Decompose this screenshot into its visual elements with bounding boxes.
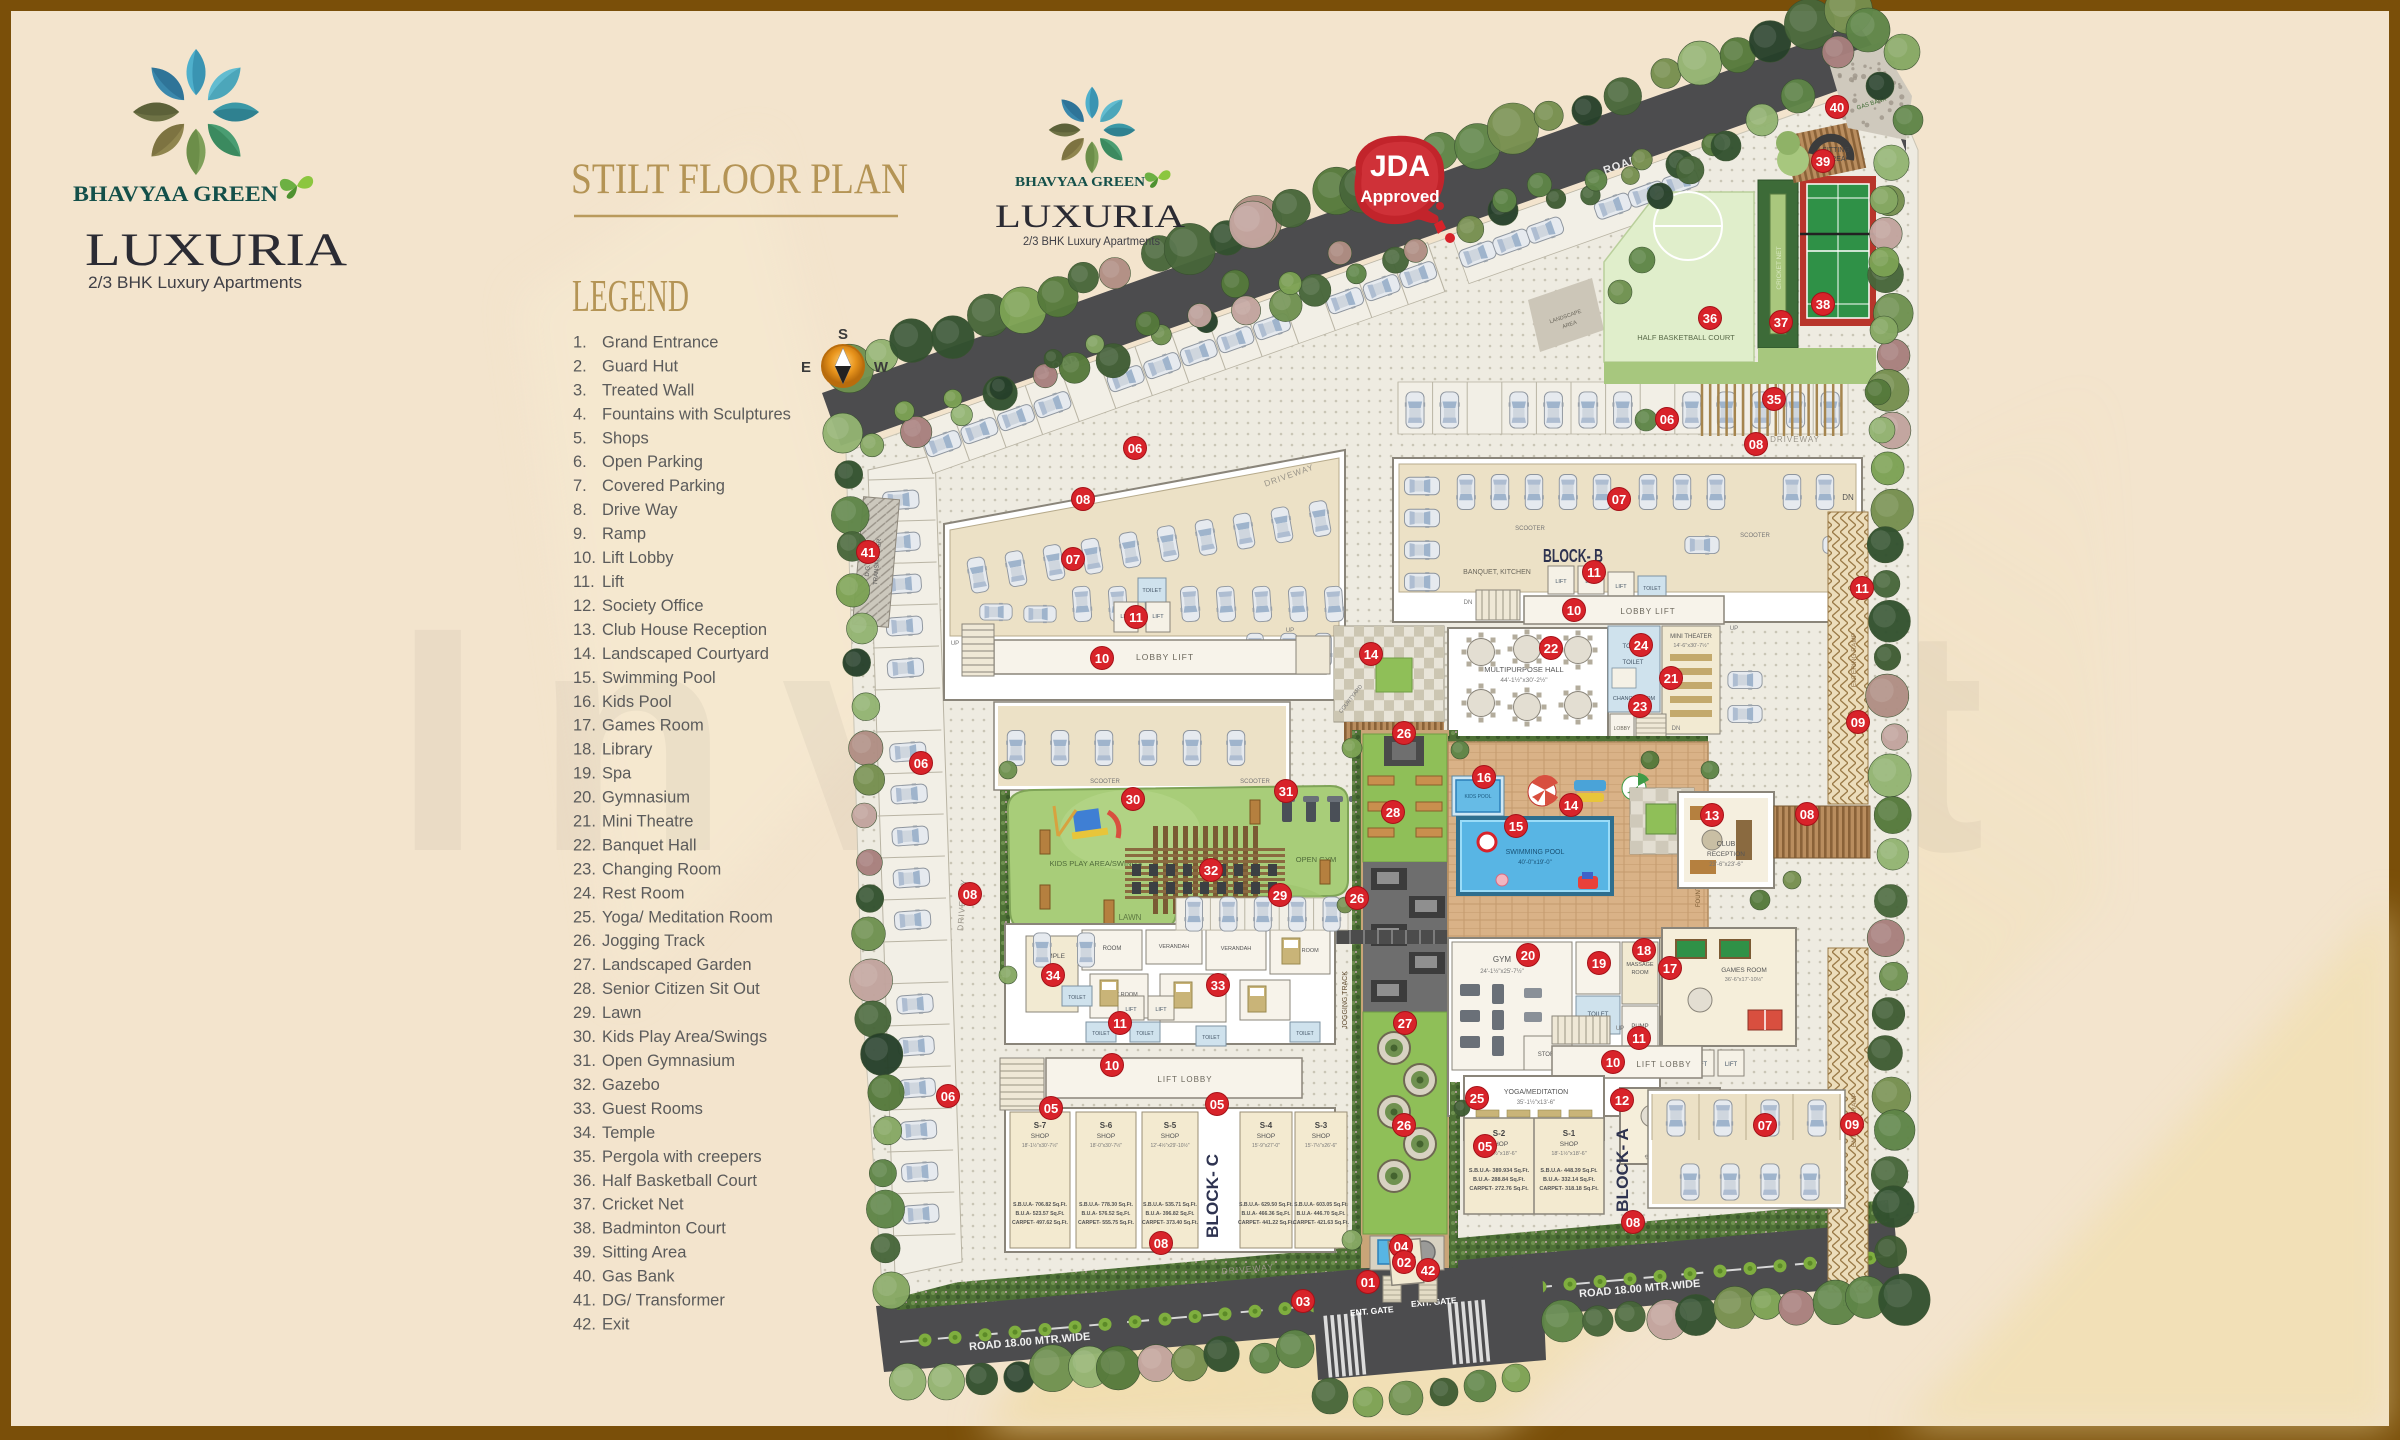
svg-text:VERANDAH: VERANDAH bbox=[1159, 944, 1190, 950]
svg-text:34.: 34. bbox=[573, 1124, 596, 1142]
svg-text:08: 08 bbox=[1800, 807, 1814, 822]
svg-text:26: 26 bbox=[1397, 1118, 1411, 1133]
svg-text:ENTERING RAMP: ENTERING RAMP bbox=[1851, 633, 1858, 687]
svg-text:06: 06 bbox=[1128, 441, 1142, 456]
svg-text:40'-0"x19'-0": 40'-0"x19'-0" bbox=[1518, 860, 1552, 866]
svg-text:19: 19 bbox=[1592, 956, 1606, 971]
svg-text:19.: 19. bbox=[573, 765, 596, 783]
svg-text:S-7: S-7 bbox=[1034, 1121, 1047, 1130]
svg-text:UP: UP bbox=[1286, 628, 1294, 634]
svg-text:LUXURIA: LUXURIA bbox=[995, 199, 1185, 235]
svg-text:18'-0"x30'-7½": 18'-0"x30'-7½" bbox=[1090, 1142, 1122, 1149]
svg-text:15: 15 bbox=[1509, 819, 1523, 834]
svg-text:CLUB: CLUB bbox=[1717, 841, 1736, 848]
svg-text:18'-1½"x30'-7½": 18'-1½"x30'-7½" bbox=[1022, 1142, 1059, 1149]
svg-text:CARPET- 441.22 Sq.Ft.: CARPET- 441.22 Sq.Ft. bbox=[1238, 1220, 1294, 1226]
svg-text:08: 08 bbox=[1154, 1236, 1168, 1251]
svg-text:Gazebo: Gazebo bbox=[602, 1076, 660, 1094]
svg-text:Landscaped Courtyard: Landscaped Courtyard bbox=[602, 645, 769, 663]
svg-text:LOBBY LIFT: LOBBY LIFT bbox=[1136, 652, 1194, 662]
svg-text:08: 08 bbox=[1626, 1215, 1640, 1230]
svg-text:03: 03 bbox=[1296, 1294, 1310, 1309]
svg-text:Landscaped Garden: Landscaped Garden bbox=[602, 956, 752, 974]
svg-text:Kids Pool: Kids Pool bbox=[602, 693, 672, 711]
svg-text:10: 10 bbox=[1567, 603, 1581, 618]
svg-text:40.: 40. bbox=[573, 1268, 596, 1286]
svg-text:Shops: Shops bbox=[602, 429, 649, 447]
svg-text:Temple: Temple bbox=[602, 1124, 655, 1142]
svg-text:DN: DN bbox=[1672, 726, 1681, 732]
svg-text:17: 17 bbox=[1663, 961, 1677, 976]
svg-text:SCOOTER: SCOOTER bbox=[1515, 526, 1545, 532]
svg-text:25.: 25. bbox=[573, 908, 596, 926]
svg-text:SWIMMING POOL: SWIMMING POOL bbox=[1506, 849, 1565, 856]
svg-text:RECEPTION: RECEPTION bbox=[1707, 851, 1745, 858]
svg-text:10: 10 bbox=[1095, 651, 1109, 666]
svg-text:S-6: S-6 bbox=[1100, 1121, 1113, 1130]
svg-text:Spa: Spa bbox=[602, 765, 632, 783]
svg-text:STILT FLOOR PLAN: STILT FLOOR PLAN bbox=[571, 156, 908, 203]
svg-text:Covered Parking: Covered Parking bbox=[602, 477, 725, 495]
svg-text:28.: 28. bbox=[573, 980, 596, 998]
svg-text:LIFT LOBBY: LIFT LOBBY bbox=[1157, 1075, 1212, 1084]
svg-text:02: 02 bbox=[1397, 1255, 1411, 1270]
svg-text:JDA: JDA bbox=[1370, 150, 1430, 183]
svg-text:LUXURIA: LUXURIA bbox=[85, 224, 347, 276]
svg-text:32.: 32. bbox=[573, 1076, 596, 1094]
svg-text:LOBBY: LOBBY bbox=[1614, 726, 1631, 732]
svg-text:Exit: Exit bbox=[602, 1315, 630, 1333]
svg-text:06: 06 bbox=[941, 1089, 955, 1104]
svg-text:01: 01 bbox=[1361, 1275, 1375, 1290]
svg-text:11.: 11. bbox=[573, 573, 595, 591]
svg-text:33: 33 bbox=[1211, 978, 1225, 993]
svg-text:36.: 36. bbox=[573, 1172, 596, 1190]
svg-text:LOBBY LIFT: LOBBY LIFT bbox=[1620, 607, 1675, 616]
svg-text:22.: 22. bbox=[573, 837, 596, 855]
svg-text:38.: 38. bbox=[573, 1220, 596, 1238]
svg-text:S.B.U.A- 389.934 Sq.Ft.: S.B.U.A- 389.934 Sq.Ft. bbox=[1469, 1168, 1530, 1174]
svg-text:W: W bbox=[874, 359, 889, 376]
svg-text:6.: 6. bbox=[573, 453, 587, 471]
svg-text:UP: UP bbox=[1730, 626, 1738, 632]
svg-text:TOILET: TOILET bbox=[1092, 1031, 1109, 1037]
svg-text:14.: 14. bbox=[573, 645, 596, 663]
svg-text:BANQUET, KITCHEN: BANQUET, KITCHEN bbox=[1463, 569, 1531, 576]
svg-text:DG/ Transformer: DG/ Transformer bbox=[602, 1292, 725, 1310]
svg-text:B.U.A- 332.14 Sq.Ft.: B.U.A- 332.14 Sq.Ft. bbox=[1543, 1177, 1595, 1183]
svg-text:7.: 7. bbox=[573, 477, 587, 495]
svg-text:S: S bbox=[838, 326, 848, 343]
svg-text:27.: 27. bbox=[573, 956, 596, 974]
svg-text:38: 38 bbox=[1816, 297, 1830, 312]
svg-text:Changing Room: Changing Room bbox=[602, 860, 721, 878]
svg-text:06: 06 bbox=[914, 756, 928, 771]
svg-text:Senior Citizen Sit Out: Senior Citizen Sit Out bbox=[602, 980, 760, 998]
svg-text:2/3 BHK Luxury Apartments: 2/3 BHK Luxury Apartments bbox=[1023, 236, 1160, 248]
svg-text:ROOM: ROOM bbox=[1631, 970, 1649, 976]
svg-text:S.B.U.A- 778.30 Sq.Ft.: S.B.U.A- 778.30 Sq.Ft. bbox=[1079, 1202, 1133, 1208]
svg-text:18'-1½"x18'-6": 18'-1½"x18'-6" bbox=[1551, 1150, 1586, 1157]
svg-text:07: 07 bbox=[1758, 1118, 1772, 1133]
svg-text:B.U.A- 466.36 Sq.Ft.: B.U.A- 466.36 Sq.Ft. bbox=[1241, 1211, 1291, 1217]
svg-text:BLOCK- C: BLOCK- C bbox=[1203, 1154, 1222, 1238]
svg-text:32: 32 bbox=[1204, 863, 1218, 878]
svg-text:42: 42 bbox=[1421, 1263, 1435, 1278]
svg-text:B.U.A- 288.84 Sq.Ft.: B.U.A- 288.84 Sq.Ft. bbox=[1473, 1177, 1525, 1183]
svg-text:CARPET- 555.75 Sq.Ft.: CARPET- 555.75 Sq.Ft. bbox=[1078, 1220, 1134, 1226]
svg-text:05: 05 bbox=[1210, 1097, 1224, 1112]
svg-text:12.: 12. bbox=[573, 597, 596, 615]
svg-text:26: 26 bbox=[1350, 891, 1364, 906]
svg-text:2.: 2. bbox=[573, 357, 587, 375]
svg-text:25: 25 bbox=[1470, 1091, 1484, 1106]
svg-text:27: 27 bbox=[1398, 1016, 1412, 1031]
svg-text:Ramp: Ramp bbox=[602, 525, 646, 543]
svg-text:09: 09 bbox=[1851, 715, 1865, 730]
svg-text:07: 07 bbox=[1612, 492, 1626, 507]
svg-text:26: 26 bbox=[1397, 726, 1411, 741]
svg-text:Sitting Area: Sitting Area bbox=[602, 1244, 687, 1262]
svg-text:SHOP: SHOP bbox=[1097, 1133, 1115, 1140]
svg-text:Games Room: Games Room bbox=[602, 717, 704, 735]
svg-text:8.: 8. bbox=[573, 501, 587, 519]
svg-text:S-2: S-2 bbox=[1493, 1129, 1506, 1138]
svg-text:24: 24 bbox=[1634, 638, 1649, 653]
svg-text:VERANDAH: VERANDAH bbox=[1221, 946, 1252, 952]
svg-text:YOGA/MEDITATION: YOGA/MEDITATION bbox=[1504, 1089, 1568, 1096]
svg-text:5.: 5. bbox=[573, 429, 587, 447]
svg-text:13.: 13. bbox=[573, 621, 596, 639]
svg-text:B.U.A- 396.82 Sq.Ft.: B.U.A- 396.82 Sq.Ft. bbox=[1145, 1211, 1195, 1217]
svg-text:20.: 20. bbox=[573, 789, 596, 807]
svg-text:Approved: Approved bbox=[1360, 187, 1439, 206]
svg-text:05: 05 bbox=[1044, 1101, 1058, 1116]
svg-text:LIFT: LIFT bbox=[1615, 584, 1627, 590]
svg-text:21: 21 bbox=[1664, 671, 1678, 686]
svg-text:08: 08 bbox=[963, 887, 977, 902]
svg-text:SHOP: SHOP bbox=[1031, 1133, 1049, 1140]
svg-text:Pergola with creepers: Pergola with creepers bbox=[602, 1148, 762, 1166]
svg-text:CARPET- 272.76 Sq.Ft.: CARPET- 272.76 Sq.Ft. bbox=[1469, 1186, 1529, 1192]
svg-text:S-3: S-3 bbox=[1315, 1121, 1328, 1130]
svg-text:S-1: S-1 bbox=[1563, 1129, 1576, 1138]
svg-text:KIDS POOL: KIDS POOL bbox=[1465, 794, 1492, 800]
svg-text:17.: 17. bbox=[573, 717, 596, 735]
svg-text:LAWN: LAWN bbox=[1119, 913, 1142, 922]
svg-text:26.: 26. bbox=[573, 932, 596, 950]
svg-text:16.: 16. bbox=[573, 693, 596, 711]
svg-text:Guest Rooms: Guest Rooms bbox=[602, 1100, 703, 1118]
svg-text:Yoga/ Meditation Room: Yoga/ Meditation Room bbox=[602, 908, 773, 926]
svg-text:14: 14 bbox=[1564, 798, 1579, 813]
svg-text:37: 37 bbox=[1774, 315, 1788, 330]
svg-text:11: 11 bbox=[1632, 1031, 1646, 1046]
svg-text:LIFT: LIFT bbox=[1125, 1007, 1137, 1013]
svg-text:DRIVEWAY: DRIVEWAY bbox=[1770, 435, 1820, 444]
svg-text:2/3 BHK Luxury Apartments: 2/3 BHK Luxury Apartments bbox=[88, 274, 302, 292]
svg-text:Lift: Lift bbox=[602, 573, 624, 591]
svg-text:24.: 24. bbox=[573, 884, 596, 902]
svg-text:Swimming Pool: Swimming Pool bbox=[602, 669, 716, 687]
svg-text:Grand Entrance: Grand Entrance bbox=[602, 334, 718, 352]
svg-text:30.: 30. bbox=[573, 1028, 596, 1046]
svg-text:Badminton Court: Badminton Court bbox=[602, 1220, 726, 1238]
svg-text:23'-6"x23'-6": 23'-6"x23'-6" bbox=[1709, 862, 1743, 868]
svg-text:20: 20 bbox=[1521, 948, 1535, 963]
svg-text:SHOP: SHOP bbox=[1312, 1133, 1330, 1140]
svg-text:S.B.U.A- 706.82 Sq.Ft.: S.B.U.A- 706.82 Sq.Ft. bbox=[1013, 1202, 1067, 1208]
svg-text:SHOP: SHOP bbox=[1161, 1133, 1179, 1140]
svg-text:Banquet Hall: Banquet Hall bbox=[602, 837, 696, 855]
svg-text:31.: 31. bbox=[573, 1052, 596, 1070]
svg-text:SCOOTER: SCOOTER bbox=[1740, 533, 1770, 539]
svg-text:Cricket Net: Cricket Net bbox=[602, 1196, 684, 1214]
svg-text:TOILET: TOILET bbox=[1296, 1031, 1313, 1037]
svg-text:37.: 37. bbox=[573, 1196, 596, 1214]
svg-text:30: 30 bbox=[1126, 792, 1140, 807]
svg-text:13: 13 bbox=[1705, 808, 1719, 823]
svg-text:TOILET: TOILET bbox=[1643, 586, 1660, 592]
svg-text:41.: 41. bbox=[573, 1292, 596, 1310]
svg-text:Guard Hut: Guard Hut bbox=[602, 357, 679, 375]
svg-text:10: 10 bbox=[1606, 1055, 1620, 1070]
svg-text:1.: 1. bbox=[573, 334, 587, 352]
svg-text:10.: 10. bbox=[573, 549, 596, 567]
svg-text:44'-1½"x30'-2½": 44'-1½"x30'-2½" bbox=[1500, 676, 1548, 684]
svg-text:12: 12 bbox=[1615, 1093, 1629, 1108]
svg-text:SHOP: SHOP bbox=[1560, 1141, 1578, 1148]
svg-text:Society Office: Society Office bbox=[602, 597, 704, 615]
svg-text:33.: 33. bbox=[573, 1100, 596, 1118]
svg-text:MULTIPURPOSE HALL: MULTIPURPOSE HALL bbox=[1484, 665, 1563, 674]
svg-text:34: 34 bbox=[1046, 968, 1061, 983]
svg-text:LIFT: LIFT bbox=[1152, 614, 1164, 620]
svg-text:41: 41 bbox=[861, 545, 875, 560]
svg-text:42.: 42. bbox=[573, 1315, 596, 1333]
svg-text:39: 39 bbox=[1816, 154, 1830, 169]
svg-text:TOILET: TOILET bbox=[1623, 660, 1644, 666]
svg-text:TOILET: TOILET bbox=[1068, 995, 1085, 1001]
svg-text:40: 40 bbox=[1830, 100, 1844, 115]
svg-text:E: E bbox=[801, 359, 811, 376]
svg-text:CARPET- 318.18 Sq.Ft.: CARPET- 318.18 Sq.Ft. bbox=[1539, 1186, 1599, 1192]
svg-text:31: 31 bbox=[1279, 784, 1293, 799]
svg-text:Treated Wall: Treated Wall bbox=[602, 381, 694, 399]
svg-text:4.: 4. bbox=[573, 405, 587, 423]
svg-text:Mini Theatre: Mini Theatre bbox=[602, 813, 693, 831]
svg-text:07: 07 bbox=[1066, 552, 1080, 567]
svg-text:CRICKET NET: CRICKET NET bbox=[1776, 246, 1783, 289]
svg-text:LIFT: LIFT bbox=[1155, 1007, 1167, 1013]
svg-text:14: 14 bbox=[1364, 647, 1379, 662]
svg-text:Gymnasium: Gymnasium bbox=[602, 789, 690, 807]
svg-text:B.U.A- 576.52 Sq.Ft.: B.U.A- 576.52 Sq.Ft. bbox=[1081, 1211, 1131, 1217]
svg-text:DN: DN bbox=[1842, 493, 1854, 502]
svg-text:09: 09 bbox=[1845, 1117, 1859, 1132]
svg-text:CARPET- 373.40 Sq.Ft.: CARPET- 373.40 Sq.Ft. bbox=[1142, 1220, 1198, 1226]
svg-text:18.: 18. bbox=[573, 741, 596, 759]
svg-text:S-4: S-4 bbox=[1260, 1121, 1273, 1130]
svg-text:CARPET- 421.63 Sq.Ft.: CARPET- 421.63 Sq.Ft. bbox=[1293, 1220, 1349, 1226]
svg-text:S.B.U.A- 535.71 Sq.Ft.: S.B.U.A- 535.71 Sq.Ft. bbox=[1143, 1202, 1197, 1208]
svg-text:14'-6"x30'-7½": 14'-6"x30'-7½" bbox=[1673, 642, 1708, 649]
svg-text:11: 11 bbox=[1113, 1016, 1127, 1031]
svg-text:Library: Library bbox=[602, 741, 653, 759]
svg-text:10: 10 bbox=[1105, 1058, 1119, 1073]
svg-text:23.: 23. bbox=[573, 860, 596, 878]
svg-text:06: 06 bbox=[1660, 412, 1674, 427]
svg-text:Lift Lobby: Lift Lobby bbox=[602, 549, 674, 567]
svg-text:TOILET: TOILET bbox=[1202, 1035, 1219, 1041]
svg-text:Open Parking: Open Parking bbox=[602, 453, 703, 471]
svg-text:SCOOTER: SCOOTER bbox=[1090, 779, 1120, 785]
svg-text:35.: 35. bbox=[573, 1148, 596, 1166]
svg-text:11: 11 bbox=[1587, 565, 1601, 580]
svg-text:TOILET: TOILET bbox=[1136, 1031, 1153, 1037]
svg-text:15.: 15. bbox=[573, 669, 596, 687]
svg-text:16: 16 bbox=[1477, 770, 1491, 785]
svg-text:15'-7½"x26'-6": 15'-7½"x26'-6" bbox=[1305, 1142, 1337, 1149]
svg-text:Lawn: Lawn bbox=[602, 1004, 641, 1022]
svg-text:35: 35 bbox=[1767, 392, 1781, 407]
svg-text:BHAVYAA GREEN: BHAVYAA GREEN bbox=[1015, 175, 1145, 190]
svg-text:Drive Way: Drive Way bbox=[602, 501, 678, 519]
svg-text:15'-9"x27'-0": 15'-9"x27'-0" bbox=[1252, 1143, 1280, 1149]
svg-text:24'-1½"x25'-7½": 24'-1½"x25'-7½" bbox=[1480, 968, 1524, 975]
svg-text:BHAVYAA GREEN: BHAVYAA GREEN bbox=[73, 181, 278, 206]
svg-text:Kids Play Area/Swings: Kids Play Area/Swings bbox=[602, 1028, 767, 1046]
svg-text:S-5: S-5 bbox=[1164, 1121, 1177, 1130]
svg-text:LIFT: LIFT bbox=[1555, 579, 1567, 585]
svg-text:DN: DN bbox=[1464, 600, 1473, 606]
svg-text:Rest Room: Rest Room bbox=[602, 884, 685, 902]
svg-text:Open Gymnasium: Open Gymnasium bbox=[602, 1052, 735, 1070]
svg-text:18: 18 bbox=[1637, 943, 1651, 958]
svg-text:36'-6"x17'-10½": 36'-6"x17'-10½" bbox=[1725, 976, 1763, 983]
svg-text:Fountains with Sculptures: Fountains with Sculptures bbox=[602, 405, 791, 423]
svg-text:S.B.U.A- 629.50 Sq.Ft.: S.B.U.A- 629.50 Sq.Ft. bbox=[1239, 1202, 1293, 1208]
svg-text:B.U.A- 523.57 Sq.Ft.: B.U.A- 523.57 Sq.Ft. bbox=[1015, 1211, 1065, 1217]
svg-text:BLOCK- A: BLOCK- A bbox=[1613, 1128, 1632, 1212]
svg-text:CARPET- 497.62 Sq.Ft.: CARPET- 497.62 Sq.Ft. bbox=[1012, 1220, 1068, 1226]
svg-text:21.: 21. bbox=[573, 813, 596, 831]
svg-text:UP: UP bbox=[1616, 1026, 1624, 1032]
svg-text:HALF BASKETBALL COURT: HALF BASKETBALL COURT bbox=[1637, 333, 1735, 342]
svg-text:SHOP: SHOP bbox=[1257, 1133, 1275, 1140]
svg-text:Half Basketball Court: Half Basketball Court bbox=[602, 1172, 757, 1190]
svg-text:Jogging Track: Jogging Track bbox=[602, 932, 705, 950]
svg-text:S.B.U.A- 448.39 Sq.Ft.: S.B.U.A- 448.39 Sq.Ft. bbox=[1540, 1168, 1598, 1174]
svg-text:UP: UP bbox=[951, 641, 959, 647]
svg-text:TOILET: TOILET bbox=[1142, 588, 1162, 594]
svg-text:MASSAGE: MASSAGE bbox=[1626, 962, 1654, 968]
svg-text:LIFT: LIFT bbox=[1725, 1062, 1738, 1068]
svg-text:22: 22 bbox=[1544, 641, 1558, 656]
svg-text:08: 08 bbox=[1749, 437, 1763, 452]
svg-text:Gas Bank: Gas Bank bbox=[602, 1268, 675, 1286]
svg-text:LEGEND: LEGEND bbox=[572, 270, 689, 321]
svg-text:23: 23 bbox=[1633, 699, 1647, 714]
svg-text:08: 08 bbox=[1076, 492, 1090, 507]
svg-text:28: 28 bbox=[1386, 805, 1400, 820]
svg-text:35'-1½"x13'-6": 35'-1½"x13'-6" bbox=[1517, 1099, 1556, 1106]
svg-text:B.U.A- 446.70 Sq.Ft.: B.U.A- 446.70 Sq.Ft. bbox=[1296, 1211, 1346, 1217]
svg-text:LIFT LOBBY: LIFT LOBBY bbox=[1636, 1060, 1691, 1069]
svg-text:9.: 9. bbox=[573, 525, 587, 543]
svg-text:29.: 29. bbox=[573, 1004, 596, 1022]
svg-text:MINI THEATER: MINI THEATER bbox=[1670, 634, 1712, 640]
svg-text:29: 29 bbox=[1273, 888, 1287, 903]
svg-text:SCOOTER: SCOOTER bbox=[1240, 779, 1270, 785]
svg-text:ROOM: ROOM bbox=[1103, 946, 1122, 952]
svg-text:Club House Reception: Club House Reception bbox=[602, 621, 767, 639]
svg-text:GYM: GYM bbox=[1493, 955, 1512, 964]
svg-text:3.: 3. bbox=[573, 381, 587, 399]
svg-text:JOGGING TRACK: JOGGING TRACK bbox=[1342, 971, 1349, 1029]
svg-text:12'-4½"x29'-10½": 12'-4½"x29'-10½" bbox=[1150, 1142, 1189, 1149]
svg-text:39.: 39. bbox=[573, 1244, 596, 1262]
svg-text:11: 11 bbox=[1855, 581, 1869, 596]
svg-text:S.B.U.A- 603.05 Sq.Ft.: S.B.U.A- 603.05 Sq.Ft. bbox=[1294, 1202, 1348, 1208]
svg-text:GAMES ROOM: GAMES ROOM bbox=[1721, 967, 1767, 974]
svg-text:36: 36 bbox=[1703, 311, 1717, 326]
svg-text:05: 05 bbox=[1478, 1139, 1492, 1154]
svg-text:11: 11 bbox=[1129, 610, 1143, 625]
